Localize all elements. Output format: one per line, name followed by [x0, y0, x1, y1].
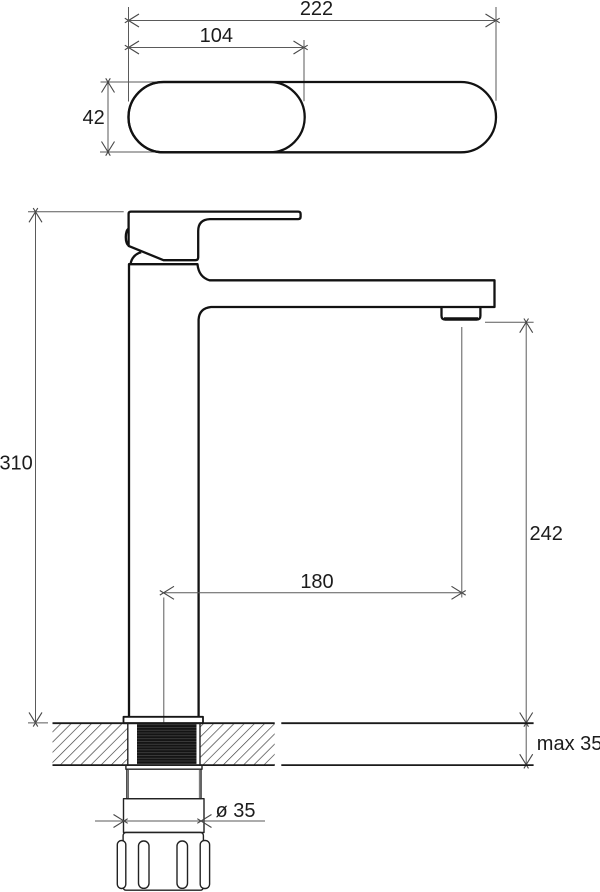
- svg-text:104: 104: [200, 25, 233, 47]
- svg-text:max 35: max 35: [537, 733, 600, 755]
- svg-text:42: 42: [83, 107, 105, 129]
- svg-text:ø 35: ø 35: [216, 800, 256, 822]
- svg-text:180: 180: [300, 571, 333, 593]
- svg-text:310: 310: [0, 452, 33, 474]
- svg-text:222: 222: [300, 0, 333, 20]
- svg-text:242: 242: [530, 523, 563, 545]
